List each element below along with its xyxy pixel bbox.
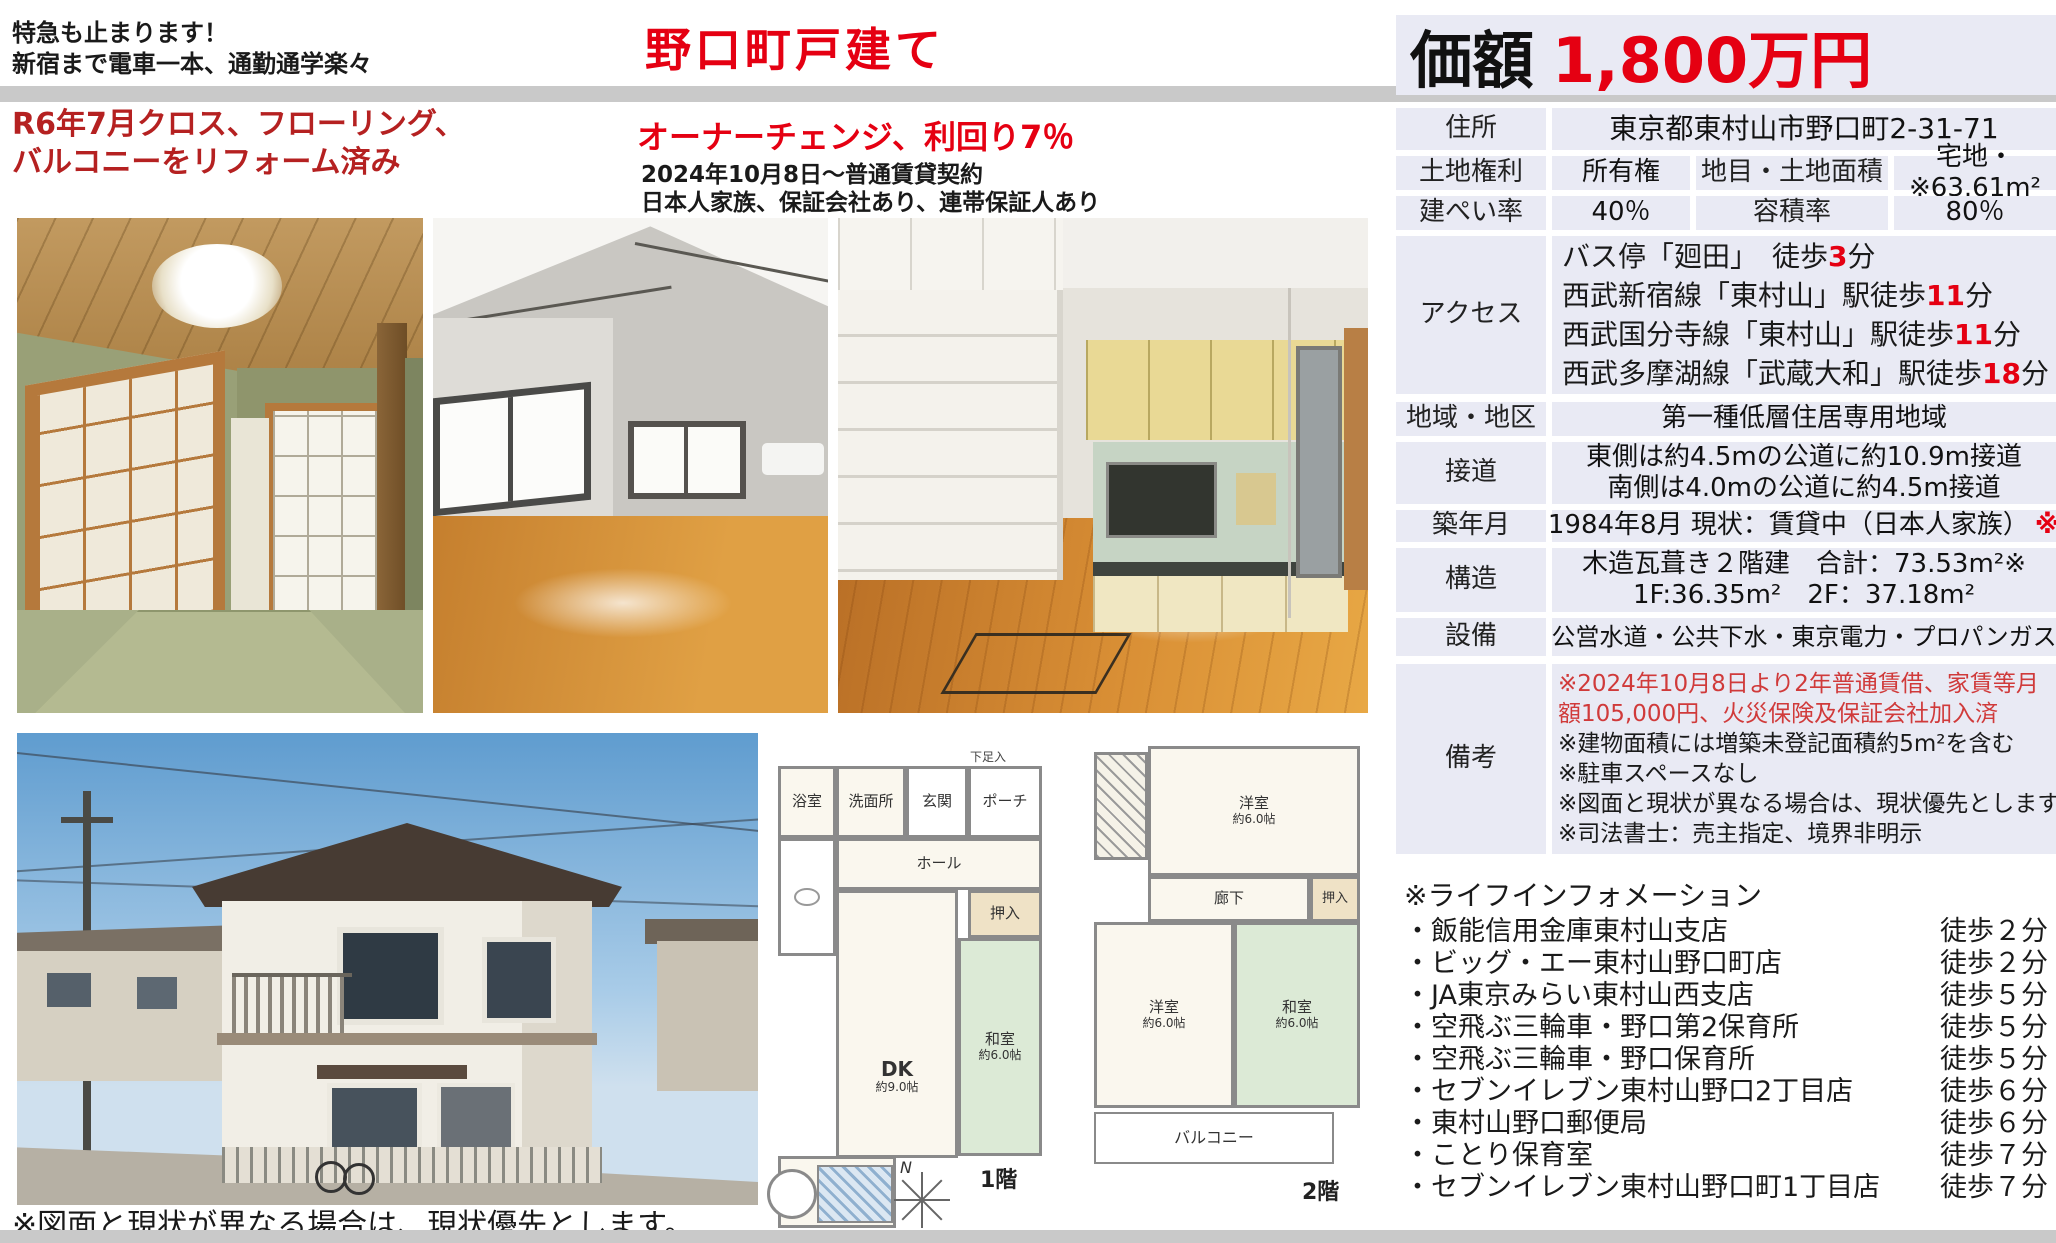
plan-room-oshiire: 押入 [968, 890, 1042, 938]
page-title: 野口町戸建て [645, 14, 945, 80]
window-sash [684, 427, 688, 493]
plan-room-yoshitsu-top: 洋室 約6.0帖 [1148, 746, 1360, 876]
row-landarea-label: 地目・土地面積 [1696, 156, 1888, 190]
row-built-label: 築年月 [1396, 510, 1546, 542]
life-info-item: ・JA東京みらい東村山西支店徒歩５分 [1404, 976, 2048, 1008]
note-line: ※建物面積には増築未登記面積約5m²を含む [1558, 729, 2056, 759]
upper-cabinets-left [838, 218, 1063, 290]
row-access-label: アクセス [1396, 236, 1546, 394]
plan-room-dk: DK 約9.0帖 [836, 890, 958, 1158]
row-landright-label: 土地権利 [1396, 156, 1546, 190]
plan-room-washitsu-2f: 和室 約6.0帖 [1234, 922, 1360, 1108]
photo-exterior-house [17, 733, 758, 1205]
neighbor-window [47, 973, 91, 1007]
front-fence [222, 1147, 602, 1183]
photo-interior-tatami-room [17, 218, 423, 713]
access-line: 西武新宿線「東村山」駅徒歩11分 [1562, 276, 1993, 315]
door-frame [1344, 328, 1368, 590]
life-info-item: ・ことり保育室徒歩７分 [1404, 1136, 2048, 1168]
eave-line [217, 1033, 597, 1045]
price-value: 1,800万円 [1552, 10, 1872, 100]
life-info-item: ・飯能信用金庫東村山支店徒歩２分 [1404, 912, 2048, 944]
top-left-line2: 新宿まで電車一本、通勤通学楽々 [12, 49, 372, 80]
plan-room-porch: ポーチ [968, 766, 1042, 838]
row-structure-label: 構造 [1396, 548, 1546, 612]
neighbor-house-left [17, 951, 227, 1081]
floor-plan-2f: 洋室 約6.0帖 廊下 押入 洋室 約6.0帖 和室 約6.0帖 バルコニー 2… [1088, 738, 1376, 1234]
row-facilities-value: 公営水道・公共下水・東京電力・プロパンガス [1552, 618, 2056, 656]
life-info-item: ・ビッグ・エー東村山野口町店徒歩２分 [1404, 944, 2048, 976]
row-road-label: 接道 [1396, 442, 1546, 504]
shoe-closet-label: 下足入 [970, 748, 1006, 765]
wall-corner [1288, 288, 1291, 618]
tub-circle [767, 1169, 817, 1219]
bath-hatch [817, 1165, 893, 1223]
plan-room-rouka: 廊下 [1148, 876, 1310, 922]
life-info-item: ・空飛ぶ三輪車・野口第2保育所徒歩５分 [1404, 1008, 2048, 1040]
note-line-red: 額105,000円、火災保険及保証会社加入済 [1558, 699, 2056, 729]
lower-window [437, 1083, 515, 1157]
floor-plan-1f: 下足入 浴室 洗面所 玄関 ポーチ ホール 押入 和室 約6.0帖 DK 約9.… [772, 738, 1050, 1234]
row-notes-label: 備考 [1396, 664, 1546, 854]
compass-icon [894, 1172, 950, 1228]
plan-room-entrance: 玄関 [906, 766, 968, 838]
promo-copy: R6年7月クロス、フローリング、 バルコニーをリフォーム済み [12, 106, 465, 182]
plan-room-washroom: 洗面所 [836, 766, 906, 838]
access-line: 西武国分寺線「東村山」駅徒歩11分 [1562, 315, 2021, 354]
note-line: ※図面と現状が異なる場合は、現状優先とします。 [1558, 789, 2056, 819]
photo-interior-kitchen [838, 218, 1368, 713]
air-conditioner [761, 442, 825, 476]
wall-panel [1236, 473, 1276, 525]
hallway-door [1296, 346, 1342, 578]
plan-room-washitsu: 和室 約6.0帖 [958, 938, 1042, 1156]
row-zone-value: 第一種低層住居専用地域 [1552, 402, 2056, 436]
row-access-value: バス停「廻田」 徒歩3分 西武新宿線「東村山」駅徒歩11分 西武国分寺線「東村山… [1552, 236, 2056, 394]
row-notes-value: ※2024年10月8日より2年普通賃借、家賃等月 額105,000円、火災保険及… [1552, 664, 2056, 854]
life-info-item: ・セブンイレブン東村山野口2丁目店徒歩６分 [1404, 1072, 2048, 1104]
kitchen-lower-cabinets [1093, 576, 1348, 632]
ceiling-light [152, 244, 282, 328]
photo-interior-western-room [433, 218, 828, 713]
access-line: 西武多摩湖線「武蔵大和」駅徒歩18分 [1562, 354, 2049, 393]
plan-room-bath: 浴室 [778, 766, 836, 838]
neighbor-window [137, 977, 177, 1009]
pole-crossarm [61, 817, 113, 823]
floor-1-label: 1階 [980, 1162, 1017, 1194]
row-landright-value: 所有権 [1552, 156, 1690, 190]
row-landarea-value: 宅地・※63.61m² [1894, 156, 2056, 190]
row-zone-label: 地域・地区 [1396, 402, 1546, 436]
life-info-list: ・飯能信用金庫東村山支店徒歩２分 ・ビッグ・エー東村山野口町店徒歩２分 ・JA東… [1404, 912, 2048, 1200]
note-line: ※駐車スペースなし [1558, 759, 2056, 789]
note-line: ※司法書士：売主指定、境界非明示 [1558, 819, 2056, 849]
plan-room-toilet [778, 838, 836, 956]
price-label: 価額 [1410, 10, 1534, 100]
contract-line2: 日本人家族、保証会社あり、連帯保証人あり [641, 183, 1100, 217]
upper-window [482, 937, 556, 1023]
white-shelving [838, 290, 1063, 580]
owner-change-headline: オーナーチェンジ、利回り7％ [637, 112, 1074, 158]
toilet-icon [794, 888, 820, 906]
row-bcr-label: 建ぺい率 [1396, 196, 1546, 230]
row-bcr-value: 40％ [1552, 196, 1690, 230]
plan-balcony: バルコニー [1094, 1112, 1334, 1164]
flyer-page: 特急も止まります！ 新宿まで電車一本、通勤通学楽々 野口町戸建て R6年7月クロ… [0, 0, 2056, 1243]
top-left-copy: 特急も止まります！ 新宿まで電車一本、通勤通学楽々 [12, 18, 372, 80]
plan-stairs [1094, 752, 1148, 860]
upper-window [337, 927, 444, 1025]
promo-line1: R6年7月クロス、フローリング、 [12, 106, 465, 144]
row-far-label: 容積率 [1696, 196, 1888, 230]
bicycle-wheel [343, 1163, 375, 1195]
life-info-item: ・セブンイレブン東村山野口町1丁目店徒歩７分 [1404, 1168, 2048, 1200]
top-left-line1: 特急も止まります！ [12, 18, 372, 49]
promo-line2: バルコニーをリフォーム済み [12, 144, 465, 182]
row-facilities-label: 設備 [1396, 618, 1546, 656]
row-road-value: 東側は約4.5mの公道に約10.9m接道 南側は4.0mの公道に約4.5m接道 [1552, 442, 2056, 504]
row-built-value: 1984年8月 現状：賃貸中（日本人家族） ※ [1552, 510, 2056, 542]
row-structure-value: 木造瓦葺き２階建 合計：73.53m²※ 1F:36.35m² 2F：37.18… [1552, 548, 2056, 612]
floor-2-label: 2階 [1302, 1174, 1339, 1206]
floor-shine [513, 568, 733, 638]
window-awning [317, 1065, 467, 1079]
neighbor-house-right [657, 941, 758, 1091]
plan-room-bathroom-lower [778, 1156, 896, 1228]
divider-bottom [0, 1230, 2056, 1243]
access-line: バス停「廻田」 徒歩3分 [1562, 237, 1876, 276]
plan-room-oshiire-2f: 押入 [1310, 876, 1360, 922]
built-note-mark: ※ [2035, 510, 2056, 541]
balcony-railing [232, 973, 352, 1039]
price-box: 価額 1,800万円 [1396, 15, 2056, 95]
center-window [628, 421, 746, 499]
plan-room-yoshitsu: 洋室 約6.0帖 [1094, 922, 1234, 1108]
plan-room-hall: ホール [836, 838, 1042, 890]
note-line-red: ※2024年10月8日より2年普通賃借、家賃等月 [1558, 669, 2056, 699]
window-sash [508, 397, 513, 502]
row-far-value: 80％ [1894, 196, 2056, 230]
kitchen-window [1106, 462, 1217, 538]
row-address-label: 住所 [1396, 108, 1546, 150]
life-info-item: ・空飛ぶ三輪車・野口保育所徒歩５分 [1404, 1040, 2048, 1072]
life-info-item: ・東村山野口郵便局徒歩６分 [1404, 1104, 2048, 1136]
left-window [433, 382, 591, 517]
